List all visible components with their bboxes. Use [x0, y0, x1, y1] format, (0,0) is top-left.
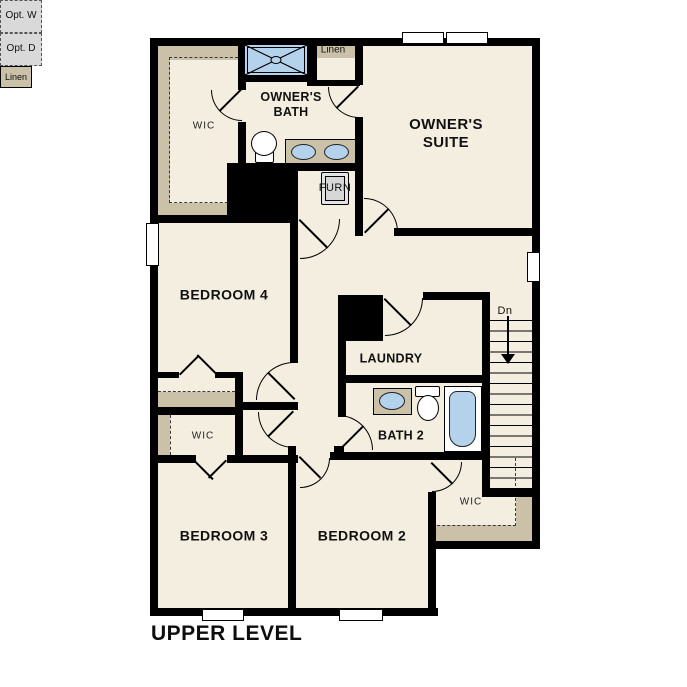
shower-glass-lines	[245, 45, 307, 75]
closet-shelf-dashline	[158, 391, 235, 393]
window	[527, 252, 540, 282]
bathtub	[449, 391, 476, 447]
wall-segment	[238, 122, 246, 165]
optional-washer-label: Opt. W	[5, 10, 36, 23]
owners-suite-label: OWNER'S SUITE	[409, 116, 483, 152]
floor-plan: Opt. W Opt. D Linen WIC OWNER'S BATH Lin…	[0, 0, 687, 687]
bath2-toilet-bowl	[417, 395, 439, 421]
wall-segment	[482, 489, 540, 497]
bath2-label: BATH 2	[378, 429, 424, 444]
optional-dryer-label: Opt. D	[7, 43, 36, 56]
bedroom3-label: BEDROOM 3	[180, 528, 268, 545]
owners-toilet-bowl	[251, 131, 277, 156]
wall-segment	[423, 292, 490, 300]
wall-segment	[428, 541, 540, 549]
wall-segment	[307, 80, 360, 86]
optional-dryer-box: Opt. D	[0, 33, 42, 66]
wall-segment	[338, 295, 383, 341]
window	[146, 223, 159, 266]
wall-segment	[394, 228, 532, 236]
wall-segment	[428, 492, 436, 616]
window	[402, 32, 444, 44]
window	[446, 32, 488, 44]
furnace-label: FURN	[319, 182, 352, 194]
closet-shelf-dashline	[170, 415, 172, 455]
wall-segment	[290, 215, 298, 363]
stair-down-arrowhead	[501, 354, 515, 364]
closet-shelf-band	[158, 415, 170, 455]
stair-treads	[490, 320, 532, 490]
closet-shelf-band	[158, 203, 238, 215]
laundry-label: LAUNDRY	[360, 352, 423, 367]
bedroom2-label: BEDROOM 2	[318, 528, 406, 545]
hall-linen-label: Linen	[321, 45, 345, 56]
stair-down-arrow	[507, 316, 509, 356]
wall-segment	[150, 455, 196, 463]
bath2-linen-closet: Linen	[0, 66, 32, 88]
wall-segment	[150, 38, 158, 616]
wall-segment	[215, 372, 240, 378]
closet-shelf-band	[158, 392, 235, 407]
wall-segment	[338, 383, 346, 417]
bath2-linen-label: Linen	[5, 72, 27, 82]
wall-segment	[150, 215, 298, 223]
wall-segment	[155, 372, 179, 378]
bath2-sink	[379, 392, 405, 410]
bedroom2-wic-label: WIC	[460, 497, 482, 508]
wall-segment	[355, 38, 363, 85]
bedroom3-wic-label: WIC	[192, 431, 214, 442]
wall-segment	[532, 38, 540, 549]
stairs-down-label: Dn	[497, 305, 512, 317]
wall-segment	[482, 292, 490, 497]
owners-wic-label: WIC	[193, 121, 215, 132]
optional-washer-box: Opt. W	[0, 0, 42, 33]
wall-segment	[330, 452, 482, 460]
bedroom4-label: BEDROOM 4	[180, 287, 268, 304]
shower	[243, 43, 309, 77]
owners-bath-label: OWNER'S BATH	[260, 90, 321, 120]
wall-segment	[355, 117, 363, 236]
wall-segment	[288, 446, 296, 616]
window	[339, 609, 383, 621]
wall-segment	[240, 402, 298, 410]
plan-title: UPPER LEVEL	[151, 622, 302, 646]
wall-segment	[150, 407, 243, 415]
wall-segment	[338, 375, 490, 383]
owners-sink-right	[324, 144, 349, 160]
window	[202, 609, 244, 621]
owners-sink-left	[291, 144, 316, 160]
closet-shelf-band	[436, 525, 532, 541]
wall-segment	[227, 163, 298, 223]
